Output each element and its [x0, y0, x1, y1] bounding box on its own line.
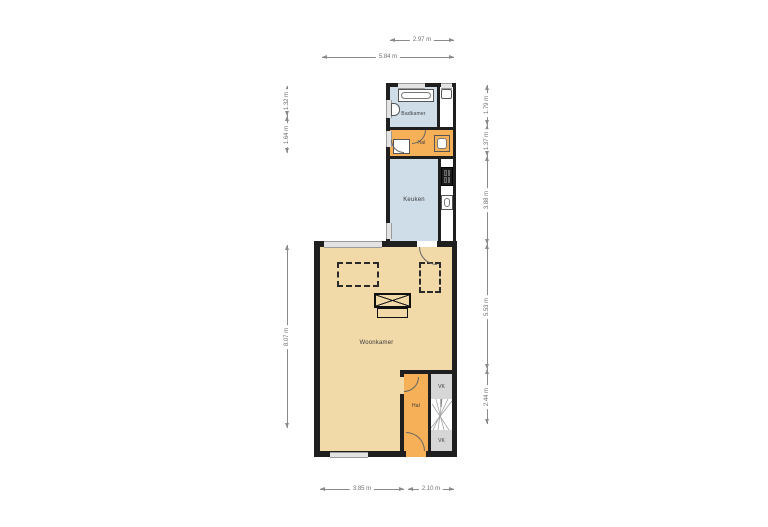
window-woonkamer-bottom	[330, 452, 368, 458]
room-label-badkamer: Badkamer	[401, 111, 425, 117]
dimension-label: 2.97 m	[410, 37, 434, 43]
dimension-label: 3.88 m	[484, 188, 490, 212]
room-label-vk-boven: VK	[438, 384, 445, 390]
burner-icon	[444, 170, 447, 176]
room-keuken: Keuken	[390, 159, 438, 241]
stairs	[431, 399, 452, 430]
bathtub	[398, 89, 434, 102]
stairs-treads-icon	[431, 399, 452, 430]
burner-icon	[448, 170, 451, 176]
window-woonkamer-top	[324, 241, 382, 248]
dimension-label: 1.79 m	[484, 93, 490, 117]
room-label-keuken: Keuken	[403, 197, 425, 203]
bathtub-inner	[401, 92, 431, 99]
dimension-label: 1.37 m	[484, 128, 490, 152]
hal-sink-basin	[437, 138, 447, 149]
room-label-woonkamer: Woonkamer	[359, 340, 393, 346]
stove	[441, 167, 453, 186]
burner-icon	[444, 177, 447, 183]
dimension-label: 1.32 m	[284, 89, 290, 113]
door-keuken-left	[386, 223, 392, 239]
dashed-zone-right	[419, 262, 441, 293]
hal-sink-unit	[434, 135, 450, 152]
washbasin-closet	[441, 89, 452, 99]
room-label-vk-beneden: VK	[438, 438, 445, 444]
room-label-hal-beneden: Hal	[412, 403, 420, 409]
dimension-label: 8.07 m	[284, 324, 290, 348]
dimension-label: 2.10 m	[419, 486, 443, 492]
dimension-label: 5.84 m	[376, 54, 400, 60]
floorplan-canvas: Badkamer Hal Keuken Woonkamer Hal VK VK	[0, 0, 768, 527]
burner-icon	[448, 177, 451, 183]
table-shelf	[377, 308, 408, 318]
room-vk-boven: VK	[431, 374, 452, 399]
dimension-label: 2.44 m	[484, 384, 490, 408]
kitchen-sink	[441, 195, 453, 210]
kitchen-sink-basin	[444, 198, 450, 207]
dimension-label: 3.85 m	[350, 486, 374, 492]
table-crossed	[374, 293, 411, 308]
dimension-label: 5.53 m	[484, 294, 490, 318]
dimension-label: 1.64 m	[284, 122, 290, 146]
front-door-gap	[406, 451, 426, 457]
dashed-zone-left	[337, 262, 379, 287]
room-vk-beneden: VK	[431, 430, 452, 451]
